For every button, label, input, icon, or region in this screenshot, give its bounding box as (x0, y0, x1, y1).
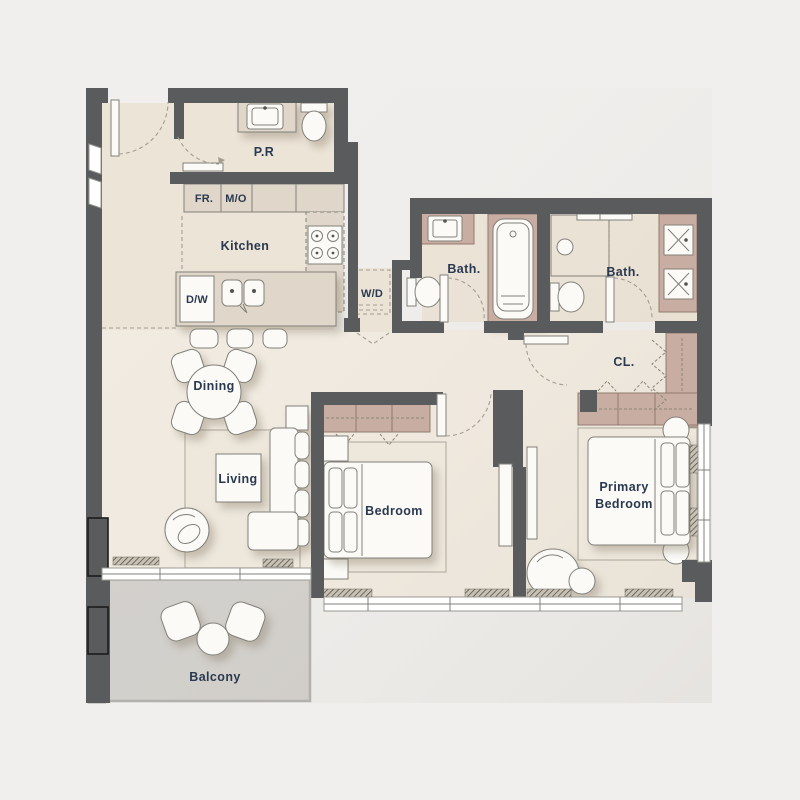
wall-bedroom-right (513, 467, 526, 600)
bedroom-door-leaf (437, 394, 446, 436)
pillow (344, 512, 357, 552)
pr-faucet-dot (263, 106, 267, 110)
pillow (661, 491, 674, 535)
label-balcony: Balcony (189, 670, 240, 684)
wall-kitchen-right (334, 88, 348, 144)
label-closet: CL. (613, 355, 634, 369)
bedroom-nightstand (322, 436, 348, 461)
pillow (344, 468, 357, 508)
wall-top-stub (86, 88, 108, 103)
bathtub-icon (488, 214, 538, 324)
label-kitchen: Kitchen (221, 239, 270, 253)
primary-door-leaf (524, 336, 568, 344)
label-powder-room: P.R (254, 145, 274, 159)
bath1-toilet-icon (407, 277, 441, 307)
wall-shaft-foot (344, 318, 360, 332)
column-left-upper (88, 518, 108, 576)
bedroom-furniture (320, 404, 432, 579)
mirror-panel (499, 464, 512, 546)
pillow (676, 443, 689, 487)
left-wall-window (89, 178, 101, 208)
wall-hall-tab (508, 333, 524, 340)
mirror-panel (527, 447, 537, 539)
wall-bath-divider (537, 212, 550, 321)
bedroom-nightstand (322, 559, 348, 579)
entry-door-leaf (111, 100, 119, 156)
wall-top (168, 88, 348, 103)
wall-bedroom-right-block (493, 390, 523, 467)
wall-shaft-left (348, 176, 358, 324)
primary-side-table (569, 568, 595, 594)
label-dining: Dining (193, 379, 234, 393)
wall-living-bedroom (311, 392, 324, 598)
pillow (676, 491, 689, 535)
wall-bath1-bottom-left (392, 321, 444, 333)
bath2-door-leaf (606, 277, 614, 322)
pillow (329, 468, 342, 508)
label-bath-2: Bath. (606, 265, 639, 279)
wall-right (697, 198, 712, 426)
wall-bath1-bottom-right (484, 321, 540, 333)
floor-plan: P.R FR. M/O Kitchen D/W W/D Bath. Bath. … (0, 0, 800, 800)
wall-bedroom-top (311, 392, 443, 405)
label-dishwasher: D/W (186, 294, 208, 306)
living-armchair (165, 508, 209, 552)
label-living: Living (218, 472, 257, 486)
label-laundry: W/D (361, 288, 383, 300)
pillow (661, 443, 674, 487)
label-bath-1: Bath. (447, 262, 480, 276)
towel-bar (600, 214, 632, 220)
sofa-side-table (286, 406, 308, 430)
wall-pr-bottom (170, 172, 358, 184)
wall-kitchen-corner (334, 142, 358, 176)
wall-foyer-stub (174, 103, 184, 139)
pillow (329, 512, 342, 552)
column-left-lower (88, 607, 108, 654)
balcony-table (197, 623, 229, 655)
bar-stools (190, 329, 287, 348)
wall-bath2-bottom-right (655, 321, 698, 333)
balcony-door-band (102, 568, 311, 580)
label-primary-line2: Bedroom (595, 497, 653, 511)
label-microwave-oven: M/O (225, 193, 247, 205)
label-bedroom: Bedroom (365, 504, 423, 518)
stove-icon (308, 226, 342, 264)
label-primary-line1: Primary (599, 480, 648, 494)
sofa-chaise (248, 512, 298, 550)
bath1-door-leaf (440, 275, 448, 322)
label-fridge: FR. (195, 193, 213, 205)
pr-toilet-bowl (302, 111, 326, 141)
wall-bath2-bottom-left (540, 321, 603, 333)
bath2-toilet-icon (550, 282, 584, 312)
left-wall-window (89, 144, 101, 174)
wall-primary-stub (580, 390, 597, 412)
primary-side-window (698, 424, 710, 562)
bedroom-window-band (324, 597, 682, 611)
wall-bath-top (410, 198, 712, 214)
